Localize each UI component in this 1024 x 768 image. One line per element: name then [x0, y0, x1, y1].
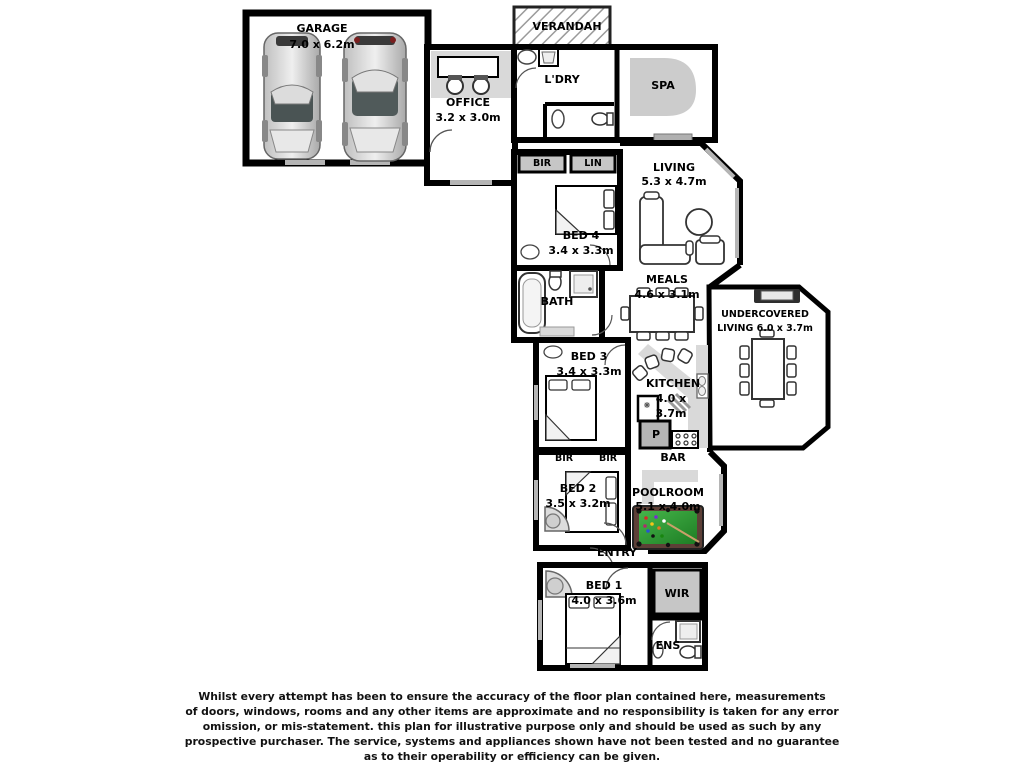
- bed1-label: BED 1: [586, 580, 623, 591]
- disclaimer-line: omission, or mis-statement. this plan fo…: [0, 719, 1024, 734]
- garage-room: [246, 13, 428, 165]
- floorplan-page: GARAGE 7.0 x 6.2m VERANDAH OFFICE 3.2 x …: [0, 0, 1024, 768]
- office-label: OFFICE: [446, 97, 490, 108]
- desk-icon: [438, 57, 498, 77]
- kitchen-dims2: 3.7m: [656, 408, 687, 419]
- pantry-label: P: [652, 429, 660, 440]
- bath-label: BATH: [541, 296, 574, 307]
- lamp-icon: [544, 346, 562, 358]
- bir-label: BIR: [533, 159, 551, 169]
- office-dims: 3.2 x 3.0m: [435, 112, 500, 123]
- shower-icon: [570, 271, 597, 297]
- living-label: LIVING: [653, 162, 695, 173]
- bed2-dims: 3.5 x 3.2m: [545, 498, 610, 509]
- ldry-label: L'DRY: [544, 74, 579, 85]
- undercovered-dims: LIVING 6.0 x 3.7m: [717, 324, 813, 334]
- toilet-icon: [549, 271, 561, 290]
- bed-icon: [556, 186, 616, 234]
- meals-label: MEALS: [646, 274, 688, 285]
- wc-basin-icon: [552, 110, 564, 128]
- bed3-dims: 3.4 x 3.3m: [556, 366, 621, 377]
- bed1-block: [540, 565, 705, 668]
- bed4-label: BED 4: [563, 230, 600, 241]
- bar-label: BAR: [660, 452, 685, 463]
- bed-icon: [546, 376, 596, 440]
- bbq-icon: [754, 289, 800, 303]
- poolroom-dims: 5.1 x 4.0m: [635, 501, 700, 512]
- car-icon: [262, 33, 322, 159]
- armchair-icon: [696, 236, 724, 264]
- meals-dims: 4.6 x 3.1m: [634, 289, 699, 300]
- bed3-label: BED 3: [571, 351, 608, 362]
- bed2-label: BED 2: [560, 483, 597, 494]
- coffee-table-icon: [686, 209, 712, 235]
- garage-label: GARAGE: [296, 23, 347, 34]
- toilet-icon: [680, 646, 701, 658]
- floorplan-drawing: [0, 0, 1024, 768]
- disclaimer-line: Whilst every attempt has been to ensure …: [0, 689, 1024, 704]
- entry-label: ENTRY: [597, 547, 637, 558]
- garage-dims: 7.0 x 6.2m: [289, 39, 354, 50]
- lin-label: LIN: [584, 159, 602, 169]
- vanity-icon: [521, 245, 539, 259]
- vanity-icon: [540, 327, 574, 336]
- bed4-dims: 3.4 x 3.3m: [548, 245, 613, 256]
- ens-label: ENS: [656, 640, 681, 651]
- wir-label: WIR: [665, 588, 690, 599]
- undercovered-label: UNDERCOVERED: [721, 310, 809, 320]
- toilet-icon: [592, 113, 613, 125]
- bed1-dims: 4.0 x 3.6m: [571, 595, 636, 606]
- spa-label: SPA: [651, 80, 675, 91]
- laundry-sink-icon: [518, 50, 536, 64]
- bir-label: BIR: [599, 454, 617, 464]
- poolroom-label: POOLROOM: [632, 487, 704, 498]
- disclaimer-line: of doors, windows, rooms and any other i…: [0, 704, 1024, 719]
- kitchen-dims1: 4.0 x: [656, 393, 686, 404]
- washing-machine-icon: [539, 49, 558, 66]
- stove-icon: [672, 431, 698, 448]
- verandah-label: VERANDAH: [532, 21, 601, 32]
- disclaimer-line: as to their operability or efficiency ca…: [0, 749, 1024, 764]
- bir-label: BIR: [555, 454, 573, 464]
- living-dims: 5.3 x 4.7m: [641, 176, 706, 187]
- disclaimer-text: Whilst every attempt has been to ensure …: [0, 689, 1024, 764]
- disclaimer-line: prospective purchaser. The service, syst…: [0, 734, 1024, 749]
- sofa-icon: [640, 192, 693, 264]
- kitchen-label: KITCHEN: [646, 378, 700, 389]
- car-icon: [342, 33, 408, 161]
